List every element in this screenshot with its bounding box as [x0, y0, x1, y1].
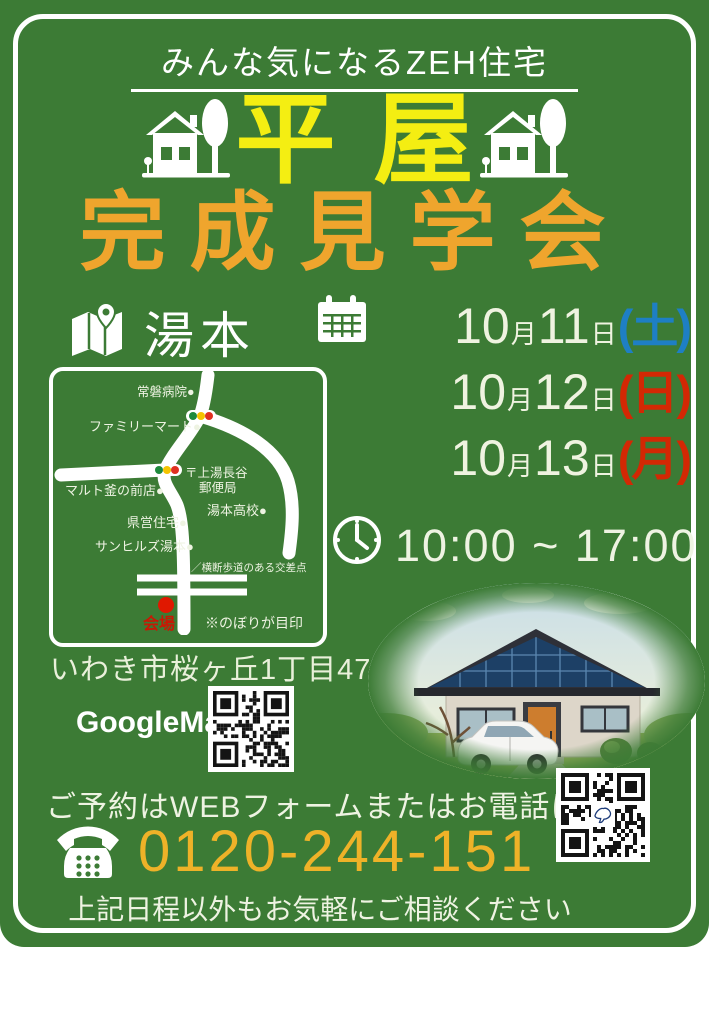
clock-icon [331, 514, 383, 577]
location-row: 湯本 [68, 296, 256, 368]
phone-number: 0120-244-151 [138, 823, 535, 881]
map-label-familymart: ファミリーマート● [89, 419, 201, 434]
house-tree-icon [140, 95, 232, 186]
calendar-icon [316, 294, 368, 349]
map-label-hospital: 常磐病院● [137, 384, 195, 399]
date-row-1: 10月11日(土) [322, 288, 690, 354]
date-month: 10 [450, 363, 506, 421]
footer-bar: ZEH builder Z0021B-00354-C オール電化住宅 QUO Q… [0, 947, 709, 1024]
subtitle-text: 完成見学会 [0, 186, 709, 281]
date-weekday: (日) [618, 354, 690, 423]
extra-note: 上記日程以外もお気軽にご相談ください [0, 888, 640, 928]
traffic-light-icon [152, 464, 182, 476]
time-row: 10:00 ~ 17:00 [331, 514, 698, 577]
map-pin-icon [68, 301, 130, 364]
date-month: 10 [454, 297, 510, 355]
venue-dot [158, 597, 174, 613]
date-month-unit: 月 [506, 380, 534, 417]
location-text: 湯本 [144, 296, 256, 368]
map-label-high-school: 湯本高校● [207, 503, 267, 518]
title-row: 平屋 [0, 90, 709, 190]
date-row-2: 10月12日(日) [322, 354, 690, 420]
date-day-unit: 日 [590, 380, 618, 417]
phone-icon [54, 818, 122, 885]
access-map: 常磐病院● ファミリーマート● 〒上湯長谷 郵便局 マルト釜の前店● 湯本高校●… [49, 367, 327, 647]
phone-row: 0120-244-151 [54, 818, 535, 885]
map-label-maruto: マルト釜の前店● [65, 483, 164, 498]
map-label-pref-housing: 県営住宅● [127, 515, 187, 530]
date-month: 10 [450, 429, 506, 487]
qr-center-logo [591, 803, 615, 827]
googlemap-qr-code [208, 686, 294, 772]
photo-vignette [368, 583, 705, 779]
date-month-unit: 月 [510, 314, 538, 351]
time-text: 10:00 ~ 17:00 [395, 520, 698, 572]
date-row-3: 10月13日(月) [322, 420, 690, 486]
dates-block: 10月11日(土) 10月12日(日) 10月13日(月) [322, 288, 690, 486]
flyer-page: みんな気になるZEH住宅 平屋 [0, 0, 709, 1024]
map-label-crosswalk: ／横断歩道のある交差点 [191, 561, 307, 574]
map-label-venue: 会場 [143, 614, 175, 633]
reservation-qr-code [556, 768, 650, 862]
house-tree-icon [478, 95, 570, 186]
date-weekday: (月) [618, 420, 690, 489]
map-label-sunhills: サンヒルズ湯本● [95, 539, 194, 554]
title-text: 平屋 [236, 90, 512, 190]
map-label-flag-note: ※のぼりが目印 [205, 615, 303, 631]
date-day: 13 [534, 429, 590, 487]
poster-background: みんな気になるZEH住宅 平屋 [0, 0, 709, 947]
date-month-unit: 月 [506, 446, 534, 483]
map-label-post-office-2: 郵便局 [199, 481, 237, 495]
date-weekday: (土) [618, 288, 690, 357]
date-day: 11 [538, 297, 590, 355]
date-day-unit: 日 [590, 446, 618, 483]
house-photo [368, 583, 705, 779]
map-label-post-office: 〒上湯長谷 [185, 466, 248, 480]
date-day-unit: 日 [590, 314, 618, 351]
date-day: 12 [534, 363, 590, 421]
address-text: いわき市桜ヶ丘1丁目47 [50, 646, 371, 688]
